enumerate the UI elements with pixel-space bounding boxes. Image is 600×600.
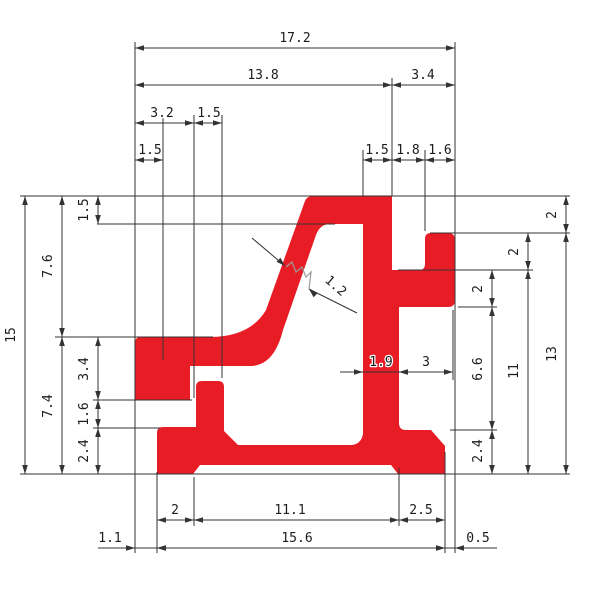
dimension-label: 2: [507, 248, 522, 256]
dimension-arrow: [489, 307, 495, 316]
dimension-label: 1.5: [197, 106, 220, 121]
dimension-label: 1.6: [428, 143, 451, 158]
dimension-label: 13: [545, 346, 560, 362]
dimension-label: 2.5: [409, 503, 432, 518]
dimension-arrow: [399, 369, 408, 375]
dimension-arrow: [489, 298, 495, 307]
dimension-arrow: [525, 261, 531, 270]
dimension-label: 1.9: [369, 355, 392, 370]
dimension-arrow: [455, 545, 464, 551]
dimension-arrow: [95, 215, 101, 224]
dimension-arrow: [390, 517, 399, 523]
drawing-canvas: 17.213.83.43.21.51.51.51.81.61.93211.12.…: [0, 0, 600, 600]
dimension-arrow: [126, 545, 135, 551]
dimension-label: 1.2: [322, 273, 350, 300]
dimension-arrow: [392, 82, 401, 88]
dimension-arrow: [444, 369, 453, 375]
dimension-arrow: [525, 270, 531, 279]
dimension-arrow: [563, 196, 569, 205]
dimension-arrow: [525, 233, 531, 242]
dimension-arrow: [392, 157, 401, 163]
dimension-label: 11.1: [274, 503, 305, 518]
dimension-label: 7.6: [41, 254, 56, 277]
dimension-arrow: [309, 289, 317, 297]
dimension-label: 6.6: [471, 357, 486, 380]
dimension-label: 1.5: [77, 198, 92, 221]
dimension-label: 2: [171, 503, 179, 518]
dimension-label: 3.2: [150, 106, 173, 121]
dimension-label: 7.4: [41, 394, 56, 418]
dimension-arrow: [95, 337, 101, 346]
dimension-arrow: [95, 391, 101, 400]
dimension-arrow: [185, 517, 194, 523]
dimension-arrow: [213, 120, 222, 126]
dimension-arrow: [489, 270, 495, 279]
dimension-arrow: [383, 82, 392, 88]
dimension-arrow: [22, 196, 28, 205]
dimension-arrow: [525, 465, 531, 474]
dimension-arrow: [563, 233, 569, 242]
dimension-arrow: [135, 45, 144, 51]
dimension-arrow: [59, 196, 65, 205]
dimension-label: 3.4: [77, 357, 92, 381]
dimension-arrow: [59, 465, 65, 474]
dimension-arrow: [22, 465, 28, 474]
dimension-arrow: [563, 465, 569, 474]
dimension-arrow: [416, 157, 425, 163]
dimension-label: 0.5: [466, 531, 489, 546]
dimension-arrow: [157, 545, 166, 551]
dimension-label: 2: [471, 285, 486, 293]
dimension-arrow: [436, 545, 445, 551]
dimension-arrow: [436, 517, 445, 523]
profile-shape: [135, 196, 455, 474]
dimension-label: 1.1: [98, 531, 121, 546]
dimension-label: 1.5: [138, 143, 161, 158]
dimension-arrow: [446, 157, 455, 163]
dimension-arrow: [354, 369, 363, 375]
dimension-label: 2: [545, 211, 560, 219]
dimension-label: 13.8: [247, 68, 278, 83]
dimension-arrow: [489, 421, 495, 430]
dimension-arrow: [95, 465, 101, 474]
dimension-arrow: [194, 120, 203, 126]
dimension-arrow: [154, 157, 163, 163]
dimension-label: 1.6: [77, 402, 92, 425]
dimension-label: 15: [4, 327, 19, 343]
dimension-arrow: [157, 517, 166, 523]
dimension-arrow: [135, 82, 144, 88]
dimension-arrow: [95, 419, 101, 428]
dimension-arrow: [95, 196, 101, 205]
dimension-arrow: [95, 400, 101, 409]
dimension-arrow: [135, 120, 144, 126]
dimension-arrow: [95, 428, 101, 437]
dimension-arrow: [363, 157, 372, 163]
dimension-arrow: [185, 120, 194, 126]
dimension-label: 15.6: [281, 531, 312, 546]
dimension-label: 3: [422, 355, 430, 370]
dimension-arrow: [135, 157, 144, 163]
dimension-arrow: [489, 430, 495, 439]
dimension-arrow: [446, 45, 455, 51]
dimension-arrow: [194, 517, 203, 523]
dimension-label: 17.2: [279, 31, 310, 46]
technical-drawing-page: 17.213.83.43.21.51.51.51.81.61.93211.12.…: [0, 0, 600, 600]
dimension-arrow: [446, 82, 455, 88]
dimension-arrow: [425, 157, 434, 163]
dimension-label: 1.5: [365, 143, 388, 158]
dimension-arrow: [59, 328, 65, 337]
dimension-arrow: [563, 224, 569, 233]
dimension-arrow: [489, 465, 495, 474]
dimension-label: 11: [507, 363, 522, 379]
dimension-arrow: [59, 337, 65, 346]
dimension-label: 3.4: [411, 68, 435, 83]
dimension-label: 1.8: [396, 143, 419, 158]
dimension-arrow: [399, 517, 408, 523]
dimension-label: 2.4: [471, 439, 486, 463]
dimension-arrow: [383, 157, 392, 163]
dimension-label: 2.4: [77, 439, 92, 463]
